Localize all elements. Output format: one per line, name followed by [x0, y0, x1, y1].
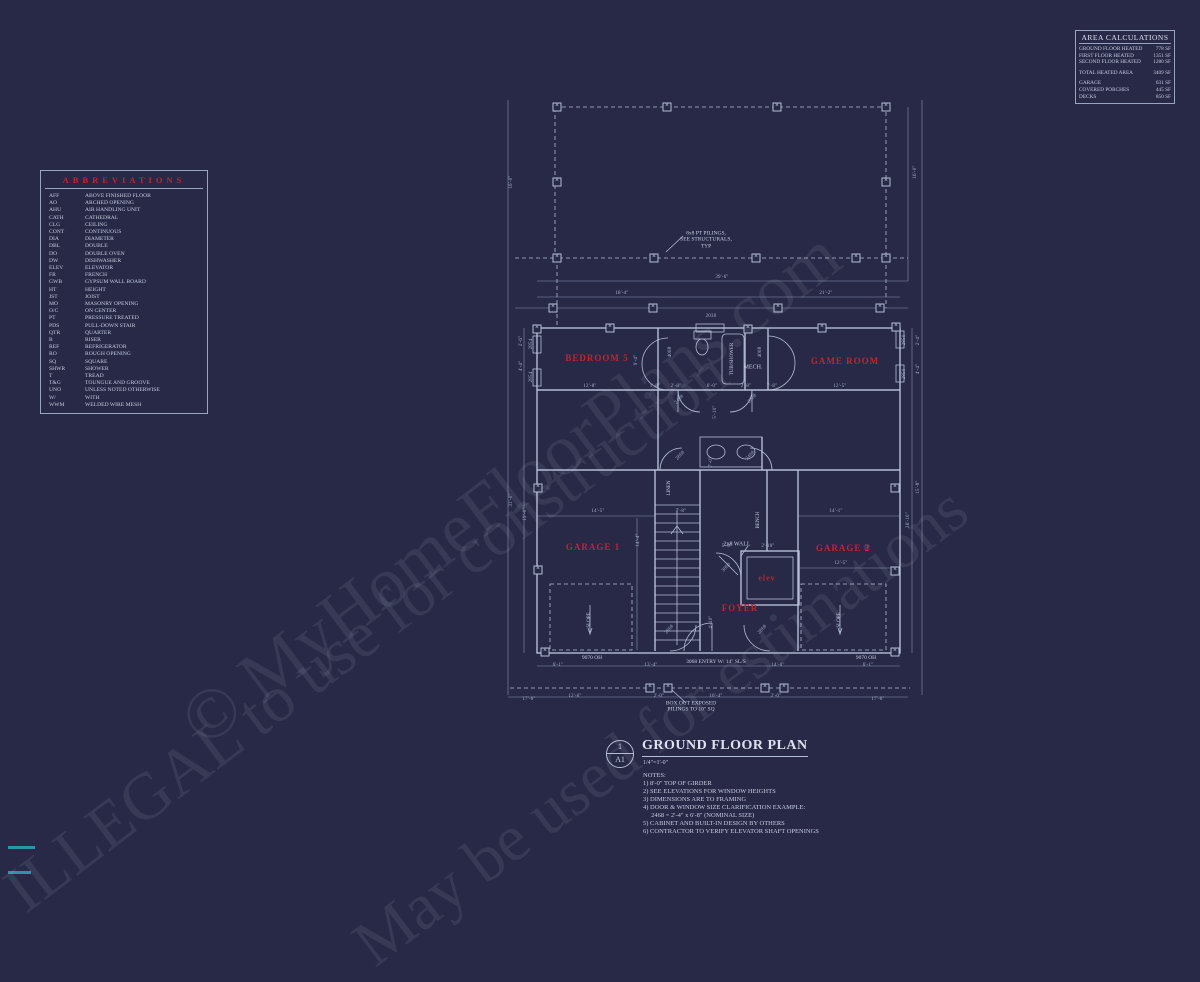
- abbreviation-code: WWM: [49, 402, 85, 409]
- abbreviations-list: AFFABOVE FINISHED FLOORAOARCHED OPENINGA…: [41, 189, 207, 409]
- abbreviation-code: RO: [49, 351, 85, 358]
- abbreviation-code: DBL: [49, 243, 85, 250]
- note-line: 2) SEE ELEVATIONS FOR WINDOW HEIGHTS: [643, 788, 819, 796]
- area-calculations-title: AREA CALCULATIONS: [1079, 33, 1171, 44]
- abbreviation-row: DIADIAMETER: [49, 236, 199, 243]
- area-calc-value: 631 SF: [1156, 80, 1171, 87]
- area-calc-label: TOTAL HEATED AREA: [1079, 70, 1133, 77]
- sheet-number: A1: [615, 754, 625, 766]
- abbreviation-meaning: ROUGH OPENING: [85, 351, 131, 358]
- abbreviation-row: DBLDOUBLE: [49, 243, 199, 250]
- floor-plan-drawing: [0, 0, 1200, 900]
- abbreviation-row: FRFRENCH: [49, 272, 199, 279]
- abbreviation-row: SQSQUARE: [49, 359, 199, 366]
- abbreviation-meaning: TOUNGUE AND GROOVE: [85, 380, 150, 387]
- notes-list: 1) 8'-0" TOP OF GIRDER2) SEE ELEVATIONS …: [643, 780, 819, 836]
- abbreviation-row: GWBGYPSUM WALL BOARD: [49, 279, 199, 286]
- abbreviation-meaning: DIAMETER: [85, 236, 114, 243]
- abbreviation-row: AFFABOVE FINISHED FLOOR: [49, 193, 199, 200]
- note-line: 2468 = 2'-4" x 6'-8" (NOMINAL SIZE): [643, 812, 819, 820]
- abbreviation-row: DWDISHWASHER: [49, 258, 199, 265]
- abbreviation-meaning: DOUBLE: [85, 243, 108, 250]
- detail-callout-bubble: 1 A1: [606, 740, 634, 768]
- abbreviation-row: SHWRSHOWER: [49, 366, 199, 373]
- abbreviation-meaning: PRESSURE TREATED: [85, 315, 139, 322]
- abbreviation-code: HT: [49, 287, 85, 294]
- abbreviation-row: PTPRESSURE TREATED: [49, 315, 199, 322]
- abbreviation-code: JST: [49, 294, 85, 301]
- abbreviation-row: O/CON CENTER: [49, 308, 199, 315]
- abbreviation-code: R: [49, 337, 85, 344]
- detail-number: 1: [618, 741, 622, 753]
- abbreviation-row: AHUAIR HANDLING UNIT: [49, 207, 199, 214]
- plan-title: GROUND FLOOR PLAN: [642, 738, 808, 757]
- area-calc-row: FIRST FLOOR HEATED1351 SF: [1079, 53, 1171, 60]
- area-calc-value: 445 SF: [1156, 87, 1171, 94]
- area-calc-row: TOTAL HEATED AREA3409 SF: [1079, 70, 1171, 77]
- area-calc-label: COVERED PORCHES: [1079, 87, 1129, 94]
- abbreviation-meaning: REFRIGERATOR: [85, 344, 127, 351]
- abbreviation-code: DIA: [49, 236, 85, 243]
- abbreviation-code: AFF: [49, 193, 85, 200]
- abbreviation-row: WWMWELDED WIRE MESH: [49, 402, 199, 409]
- area-calc-row: DECKS850 SF: [1079, 94, 1171, 101]
- abbreviation-row: UNOUNLESS NOTED OTHERWISE: [49, 387, 199, 394]
- area-extra-rows: GARAGE631 SFCOVERED PORCHES445 SFDECKS85…: [1079, 80, 1171, 100]
- abbreviations-title: ABBREVIATIONS: [45, 171, 203, 189]
- corner-dash: [8, 846, 35, 849]
- note-line: 6) CONTRACTOR TO VERIFY ELEVATOR SHAFT O…: [643, 828, 819, 836]
- abbreviation-row: REFREFRIGERATOR: [49, 344, 199, 351]
- abbreviation-code: CATH: [49, 215, 85, 222]
- abbreviation-row: AOARCHED OPENING: [49, 200, 199, 207]
- abbreviation-code: MO: [49, 301, 85, 308]
- abbreviation-code: FR: [49, 272, 85, 279]
- abbreviation-meaning: WITH: [85, 395, 100, 402]
- note-line: 3) DIMENSIONS ARE TO FRAMING: [643, 796, 819, 804]
- abbreviation-code: PT: [49, 315, 85, 322]
- abbreviation-row: TTREAD: [49, 373, 199, 380]
- abbreviation-meaning: DOUBLE OVEN: [85, 251, 125, 258]
- abbreviation-row: HTHEIGHT: [49, 287, 199, 294]
- abbreviation-meaning: PULL-DOWN STAIR: [85, 323, 135, 330]
- area-calc-value: 1280 SF: [1153, 59, 1171, 66]
- area-calc-label: GROUND FLOOR HEATED: [1079, 46, 1142, 53]
- area-calc-row: GARAGE631 SF: [1079, 80, 1171, 87]
- abbreviation-code: QTR: [49, 330, 85, 337]
- abbreviation-row: W/WITH: [49, 395, 199, 402]
- abbreviation-meaning: JOIST: [85, 294, 100, 301]
- blueprint-sheet: { "colors":{"background":"#272946","line…: [0, 0, 1200, 900]
- area-calc-row: SECOND FLOOR HEATED1280 SF: [1079, 59, 1171, 66]
- abbreviation-code: AO: [49, 200, 85, 207]
- abbreviation-code: CLG: [49, 222, 85, 229]
- abbreviation-row: ROROUGH OPENING: [49, 351, 199, 358]
- abbreviation-meaning: MASONRY OPENING: [85, 301, 138, 308]
- area-calc-label: GARAGE: [1079, 80, 1101, 87]
- abbreviation-code: ELEV: [49, 265, 85, 272]
- note-line: 4) DOOR & WINDOW SIZE CLARIFICATION EXAM…: [643, 804, 819, 812]
- abbreviation-meaning: CATHEDRAL: [85, 215, 118, 222]
- abbreviation-code: PDS: [49, 323, 85, 330]
- abbreviation-meaning: AIR HANDLING UNIT: [85, 207, 140, 214]
- abbreviation-meaning: ABOVE FINISHED FLOOR: [85, 193, 151, 200]
- area-total-row: TOTAL HEATED AREA3409 SF: [1079, 70, 1171, 77]
- plan-scale: 1/4"=1'-0": [643, 760, 668, 766]
- abbreviation-code: T: [49, 373, 85, 380]
- abbreviation-code: CONT: [49, 229, 85, 236]
- area-calculations-panel: AREA CALCULATIONS GROUND FLOOR HEATED778…: [1075, 30, 1175, 104]
- note-line: 5) CABINET AND BUILT-IN DESIGN BY OTHERS: [643, 820, 819, 828]
- abbreviation-row: RRISER: [49, 337, 199, 344]
- area-calc-row: COVERED PORCHES445 SF: [1079, 87, 1171, 94]
- abbreviation-row: ELEVELEVATOR: [49, 265, 199, 272]
- abbreviation-row: CLGCEILING: [49, 222, 199, 229]
- corner-dash: [8, 871, 31, 874]
- area-calc-value: 850 SF: [1156, 94, 1171, 101]
- abbreviation-meaning: SQUARE: [85, 359, 107, 366]
- abbreviation-code: DW: [49, 258, 85, 265]
- area-calc-label: FIRST FLOOR HEATED: [1079, 53, 1134, 60]
- abbreviation-code: SQ: [49, 359, 85, 366]
- abbreviation-meaning: TREAD: [85, 373, 104, 380]
- abbreviation-row: PDSPULL-DOWN STAIR: [49, 323, 199, 330]
- abbreviation-meaning: RISER: [85, 337, 101, 344]
- abbreviation-meaning: FRENCH: [85, 272, 107, 279]
- area-calc-label: DECKS: [1079, 94, 1096, 101]
- abbreviation-meaning: HEIGHT: [85, 287, 106, 294]
- abbreviation-row: QTRQUARTER: [49, 330, 199, 337]
- abbreviation-meaning: DISHWASHER: [85, 258, 121, 265]
- abbreviation-row: MOMASONRY OPENING: [49, 301, 199, 308]
- abbreviation-code: GWB: [49, 279, 85, 286]
- deck-outline: [510, 107, 910, 688]
- fixtures: [550, 331, 886, 650]
- abbreviations-panel: ABBREVIATIONS AFFABOVE FINISHED FLOORAOA…: [40, 170, 208, 414]
- abbreviation-meaning: CONTINUOUS: [85, 229, 121, 236]
- abbreviation-meaning: SHOWER: [85, 366, 109, 373]
- walls: [537, 328, 900, 653]
- abbreviation-row: DODOUBLE OVEN: [49, 251, 199, 258]
- abbreviation-meaning: ON CENTER: [85, 308, 116, 315]
- abbreviation-meaning: CEILING: [85, 222, 107, 229]
- abbreviation-meaning: UNLESS NOTED OTHERWISE: [85, 387, 160, 394]
- abbreviation-row: CONTCONTINUOUS: [49, 229, 199, 236]
- abbreviation-meaning: ARCHED OPENING: [85, 200, 134, 207]
- windows: [533, 324, 904, 386]
- abbreviation-code: UNO: [49, 387, 85, 394]
- area-calc-value: 1351 SF: [1153, 53, 1171, 60]
- notes-block: NOTES: 1) 8'-0" TOP OF GIRDER2) SEE ELEV…: [643, 772, 819, 836]
- abbreviation-code: DO: [49, 251, 85, 258]
- abbreviation-meaning: QUARTER: [85, 330, 111, 337]
- abbreviation-row: JSTJOIST: [49, 294, 199, 301]
- abbreviation-meaning: GYPSUM WALL BOARD: [85, 279, 146, 286]
- dimension-lines: [508, 100, 922, 697]
- abbreviation-row: T&GTOUNGUE AND GROOVE: [49, 380, 199, 387]
- abbreviation-meaning: ELEVATOR: [85, 265, 113, 272]
- area-calc-row: GROUND FLOOR HEATED778 SF: [1079, 46, 1171, 53]
- abbreviation-code: SHWR: [49, 366, 85, 373]
- abbreviation-code: O/C: [49, 308, 85, 315]
- abbreviation-code: W/: [49, 395, 85, 402]
- area-calc-value: 778 SF: [1156, 46, 1171, 53]
- notes-title: NOTES:: [643, 772, 819, 780]
- area-heated-rows: GROUND FLOOR HEATED778 SFFIRST FLOOR HEA…: [1079, 46, 1171, 66]
- abbreviation-meaning: WELDED WIRE MESH: [85, 402, 141, 409]
- area-calc-label: SECOND FLOOR HEATED: [1079, 59, 1141, 66]
- abbreviation-code: T&G: [49, 380, 85, 387]
- abbreviation-code: REF: [49, 344, 85, 351]
- abbreviation-code: AHU: [49, 207, 85, 214]
- abbreviation-row: CATHCATHEDRAL: [49, 215, 199, 222]
- area-calc-value: 3409 SF: [1153, 70, 1171, 77]
- note-line: 1) 8'-0" TOP OF GIRDER: [643, 780, 819, 788]
